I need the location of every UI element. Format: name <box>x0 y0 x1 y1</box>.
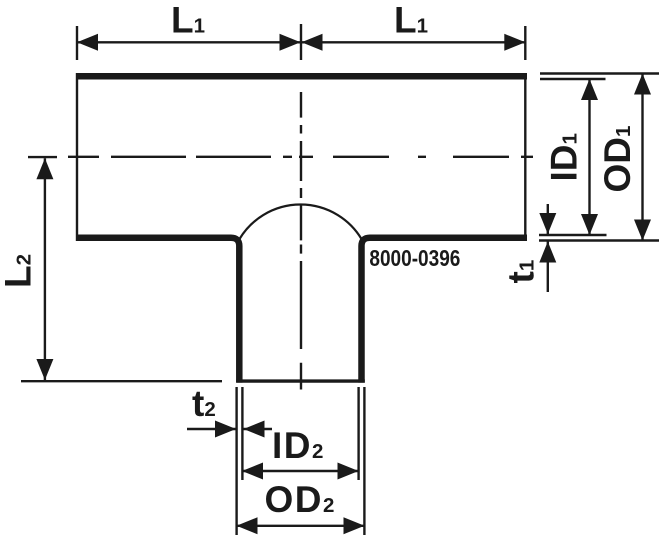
svg-text:8000-0396: 8000-0396 <box>369 245 460 271</box>
